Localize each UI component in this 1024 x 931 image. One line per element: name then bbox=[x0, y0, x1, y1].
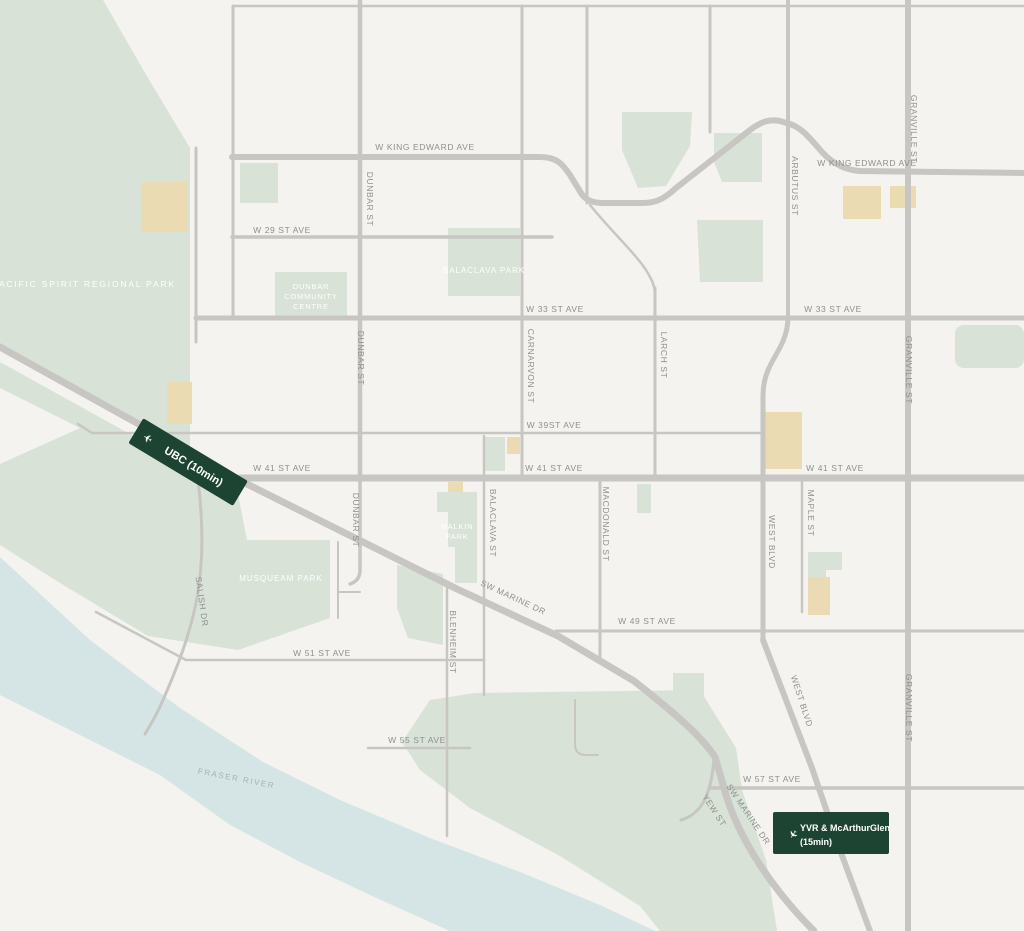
vancouver-area-map: W KING EDWARD AVE W KING EDWARD AVE W 29… bbox=[0, 0, 1024, 931]
label-granville-1: GRANVILLE ST bbox=[909, 95, 919, 163]
label-arbutus: ARBUTUS ST bbox=[790, 156, 800, 216]
label-w41-e: W 41 ST AVE bbox=[806, 463, 864, 473]
label-maple: MAPLE ST bbox=[806, 490, 816, 537]
label-macdonald: MACDONALD ST bbox=[601, 487, 611, 562]
building-block bbox=[142, 182, 188, 232]
label-musqueam-park: MUSQUEAM PARK bbox=[239, 574, 323, 583]
label-pacific-spirit-park: PACIFIC SPIRIT REGIONAL PARK bbox=[0, 279, 176, 289]
label-w41-mid: W 41 ST AVE bbox=[525, 463, 583, 473]
label-carnarvon: CARNARVON ST bbox=[526, 329, 536, 404]
park-chaldecott bbox=[240, 163, 278, 203]
label-dunbar-cc-1: DUNBAR bbox=[293, 282, 329, 291]
badge-yvr-line2: (15min) bbox=[800, 837, 832, 847]
label-dunbar-cc-3: CENTRE bbox=[293, 302, 329, 311]
label-balaclava-park: BALACLAVA PARK bbox=[443, 266, 525, 275]
label-king-edward-w: W KING EDWARD AVE bbox=[375, 142, 474, 152]
badge-yvr: ✈ YVR & McArthurGlen (15min) bbox=[773, 812, 890, 854]
building-block bbox=[448, 482, 463, 492]
park-small-balaclava41 bbox=[483, 437, 505, 471]
building-block bbox=[507, 437, 520, 454]
label-dunbar-cc-2: COMMUNITY bbox=[284, 292, 337, 301]
badge-yvr-line1: YVR & McArthurGlen bbox=[800, 823, 890, 833]
label-w57: W 57 ST AVE bbox=[743, 774, 801, 784]
park-quilchena-c bbox=[697, 220, 763, 282]
building-block bbox=[843, 186, 881, 219]
label-king-edward-e: W KING EDWARD AVE bbox=[817, 158, 916, 168]
label-granville-2: GRANVILLE ST bbox=[904, 336, 914, 404]
label-w29: W 29 ST AVE bbox=[253, 225, 311, 235]
label-west-blvd-v: WEST BLVD bbox=[767, 515, 777, 569]
label-w39: W 39ST AVE bbox=[527, 420, 582, 430]
label-w33-e: W 33 ST AVE bbox=[804, 304, 862, 314]
building-block bbox=[167, 382, 192, 424]
label-malkin-park-2: PARK bbox=[445, 532, 468, 541]
label-w51: W 51 ST AVE bbox=[293, 648, 351, 658]
label-dunbar-1: DUNBAR ST bbox=[365, 172, 375, 227]
label-w55: W 55 ST AVE bbox=[388, 735, 446, 745]
map-canvas: W KING EDWARD AVE W KING EDWARD AVE W 29… bbox=[0, 0, 1024, 931]
label-dunbar-3: DUNBAR ST bbox=[351, 493, 361, 548]
label-w41-w: W 41 ST AVE bbox=[253, 463, 311, 473]
label-blenheim: BLENHEIM ST bbox=[448, 610, 458, 673]
building-block bbox=[890, 186, 916, 208]
label-granville-3: GRANVILLE ST bbox=[904, 674, 914, 742]
label-malkin-park-1: MALKIN bbox=[441, 522, 474, 531]
label-dunbar-2: DUNBAR ST bbox=[356, 331, 366, 386]
building-block bbox=[808, 577, 830, 615]
label-w49: W 49 ST AVE bbox=[618, 616, 676, 626]
building-block bbox=[765, 412, 802, 469]
label-larch: LARCH ST bbox=[659, 332, 669, 379]
label-balaclava: BALACLAVA ST bbox=[488, 489, 498, 557]
label-w33-mid: W 33 ST AVE bbox=[526, 304, 584, 314]
park-small-larch41 bbox=[637, 484, 651, 513]
park-right-edge bbox=[955, 325, 1024, 368]
